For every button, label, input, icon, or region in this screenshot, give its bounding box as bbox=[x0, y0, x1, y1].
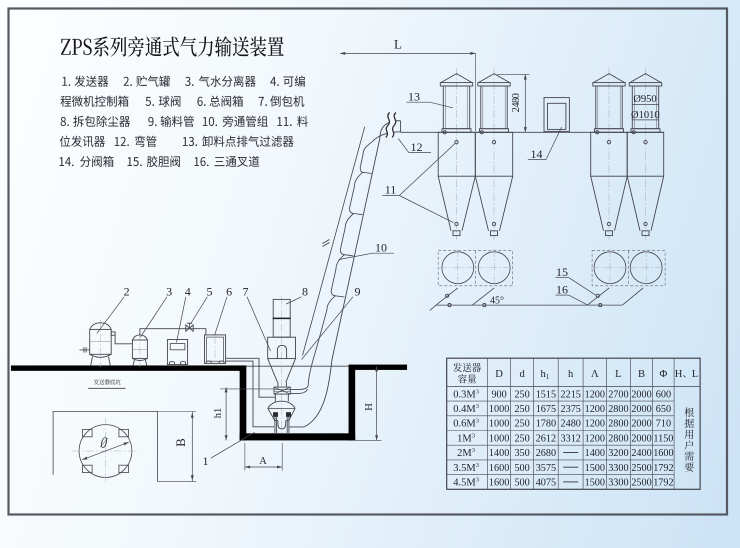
svg-text:5: 5 bbox=[207, 285, 213, 299]
svg-text:3312: 3312 bbox=[561, 433, 581, 444]
svg-text:2800: 2800 bbox=[608, 433, 628, 444]
svg-text:2500: 2500 bbox=[631, 478, 651, 489]
svg-text:0.6M3: 0.6M3 bbox=[453, 418, 479, 430]
svg-text:2480: 2480 bbox=[561, 419, 581, 430]
svg-text:14: 14 bbox=[531, 147, 543, 161]
svg-text:L: L bbox=[615, 369, 621, 380]
svg-text:2500: 2500 bbox=[631, 463, 651, 474]
svg-text:2215: 2215 bbox=[561, 389, 581, 400]
svg-text:2800: 2800 bbox=[608, 419, 628, 430]
svg-text:1600: 1600 bbox=[489, 463, 509, 474]
svg-text:3200: 3200 bbox=[608, 448, 628, 459]
svg-text:D: D bbox=[495, 369, 503, 380]
svg-text:H: H bbox=[364, 403, 375, 411]
svg-text:900: 900 bbox=[491, 389, 506, 400]
svg-text:250: 250 bbox=[514, 389, 529, 400]
svg-text:1792: 1792 bbox=[653, 463, 673, 474]
svg-text:10: 10 bbox=[375, 241, 387, 255]
svg-text:2000: 2000 bbox=[631, 389, 651, 400]
svg-text:1M3: 1M3 bbox=[457, 432, 475, 444]
svg-text:500: 500 bbox=[514, 463, 529, 474]
svg-text:Φ: Φ bbox=[660, 369, 668, 380]
svg-text:4.5M3: 4.5M3 bbox=[453, 477, 479, 489]
svg-text:4075: 4075 bbox=[536, 478, 556, 489]
svg-text:Λ: Λ bbox=[591, 369, 599, 380]
svg-text:h1: h1 bbox=[213, 408, 224, 419]
svg-text:16: 16 bbox=[556, 283, 568, 297]
svg-text:A: A bbox=[259, 456, 267, 467]
svg-text:3300: 3300 bbox=[608, 478, 628, 489]
svg-text:4: 4 bbox=[185, 285, 191, 299]
svg-text:1780: 1780 bbox=[536, 419, 556, 430]
svg-text:1200: 1200 bbox=[585, 404, 605, 415]
svg-text:d: d bbox=[519, 369, 525, 380]
svg-text:2700: 2700 bbox=[608, 389, 628, 400]
svg-text:710: 710 bbox=[656, 419, 671, 430]
svg-text:13: 13 bbox=[408, 90, 420, 104]
svg-text:3300: 3300 bbox=[608, 463, 628, 474]
svg-text:1500: 1500 bbox=[585, 463, 605, 474]
svg-text:h1: h1 bbox=[541, 369, 550, 381]
svg-text:7: 7 bbox=[243, 285, 249, 299]
svg-text:11: 11 bbox=[385, 183, 397, 197]
svg-text:1400: 1400 bbox=[489, 448, 509, 459]
svg-text:L: L bbox=[394, 37, 402, 52]
svg-text:2M3: 2M3 bbox=[457, 447, 475, 459]
svg-text:250: 250 bbox=[514, 433, 529, 444]
svg-text:250: 250 bbox=[514, 419, 529, 430]
svg-text:2480: 2480 bbox=[511, 93, 522, 112]
svg-text:1: 1 bbox=[203, 454, 209, 468]
svg-text:2800: 2800 bbox=[608, 404, 628, 415]
svg-text:1600: 1600 bbox=[489, 478, 509, 489]
svg-text:2000: 2000 bbox=[631, 404, 651, 415]
svg-text:0.4M3: 0.4M3 bbox=[453, 403, 479, 415]
svg-text:1200: 1200 bbox=[585, 419, 605, 430]
svg-text:1200: 1200 bbox=[585, 433, 605, 444]
svg-text:1000: 1000 bbox=[489, 433, 509, 444]
svg-text:Ø1010: Ø1010 bbox=[631, 110, 660, 121]
svg-text:h: h bbox=[568, 369, 574, 380]
svg-text:B: B bbox=[638, 369, 645, 380]
svg-text:1515: 1515 bbox=[536, 389, 556, 400]
svg-text:0.3M3: 0.3M3 bbox=[453, 388, 479, 400]
svg-text:250: 250 bbox=[514, 404, 529, 415]
svg-text:2: 2 bbox=[124, 285, 130, 299]
svg-text:6: 6 bbox=[226, 285, 232, 299]
svg-text:600: 600 bbox=[656, 389, 671, 400]
svg-text:H: H bbox=[675, 369, 683, 380]
svg-text:2612: 2612 bbox=[536, 433, 556, 444]
svg-text:12: 12 bbox=[411, 140, 423, 154]
svg-text:1200: 1200 bbox=[585, 389, 605, 400]
svg-text:2375: 2375 bbox=[561, 404, 581, 415]
svg-text:2680: 2680 bbox=[536, 448, 556, 459]
svg-text:1600: 1600 bbox=[653, 448, 673, 459]
svg-text:1400: 1400 bbox=[585, 448, 605, 459]
svg-text:9: 9 bbox=[355, 285, 361, 299]
svg-text:1150: 1150 bbox=[653, 433, 673, 444]
svg-text:2400: 2400 bbox=[631, 448, 651, 459]
svg-text:Ø: Ø bbox=[99, 433, 110, 452]
svg-text:L: L bbox=[692, 369, 698, 380]
svg-text:350: 350 bbox=[514, 448, 529, 459]
svg-text:1792: 1792 bbox=[653, 478, 673, 489]
svg-text:2000: 2000 bbox=[631, 419, 651, 430]
svg-text:2000: 2000 bbox=[631, 433, 651, 444]
svg-text:3: 3 bbox=[166, 285, 172, 299]
svg-text:500: 500 bbox=[514, 478, 529, 489]
svg-text:1675: 1675 bbox=[536, 404, 556, 415]
svg-text:8: 8 bbox=[302, 285, 308, 299]
svg-text:Ø950: Ø950 bbox=[633, 94, 656, 105]
svg-text:3.5M3: 3.5M3 bbox=[453, 462, 479, 474]
svg-text:1500: 1500 bbox=[585, 478, 605, 489]
svg-text:3575: 3575 bbox=[536, 463, 556, 474]
svg-text:15: 15 bbox=[556, 265, 568, 279]
svg-text:45°: 45° bbox=[490, 296, 504, 307]
svg-text:B: B bbox=[173, 438, 188, 447]
svg-text:1000: 1000 bbox=[489, 404, 509, 415]
svg-text:650: 650 bbox=[656, 404, 671, 415]
svg-text:1000: 1000 bbox=[489, 419, 509, 430]
